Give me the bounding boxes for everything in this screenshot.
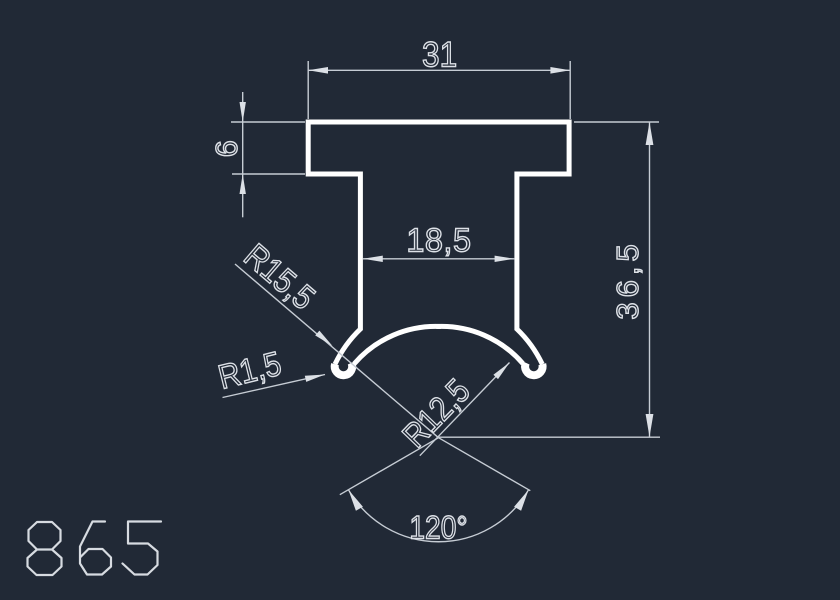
svg-text:120°: 120° (409, 511, 467, 546)
svg-text:18,5: 18,5 (406, 221, 471, 259)
svg-text:31: 31 (422, 36, 457, 75)
svg-text:36,5: 36,5 (610, 239, 645, 319)
svg-text:6: 6 (210, 140, 244, 157)
